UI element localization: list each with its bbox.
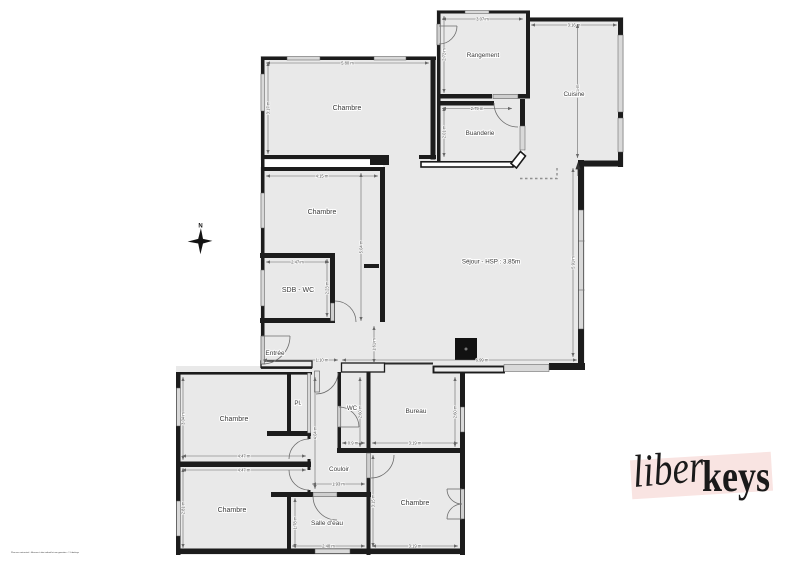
svg-text:Chambre: Chambre: [333, 105, 362, 112]
svg-text:3.19 m: 3.19 m: [409, 544, 422, 549]
svg-text:2.01 m: 2.01 m: [442, 125, 447, 138]
svg-text:2.60 m: 2.60 m: [453, 405, 458, 418]
svg-text:2.79 m: 2.79 m: [471, 106, 484, 111]
svg-text:Chambre: Chambre: [220, 416, 249, 423]
svg-text:Pl.: Pl.: [294, 400, 302, 407]
svg-text:5.80 m: 5.80 m: [341, 61, 354, 66]
svg-text:4.04 m: 4.04 m: [313, 426, 318, 439]
svg-text:4.47 m: 4.47 m: [238, 454, 251, 459]
svg-text:6.99 m: 6.99 m: [476, 358, 489, 363]
svg-text:3.16 m: 3.16 m: [568, 23, 581, 28]
svg-text:2.60 m: 2.60 m: [358, 405, 363, 418]
svg-text:WC: WC: [347, 405, 358, 412]
svg-text:Rangement: Rangement: [467, 52, 500, 59]
svg-text:Chambre: Chambre: [401, 500, 430, 507]
svg-text:1.61 m: 1.61 m: [372, 338, 377, 351]
svg-text:Plan non contractuel - Mesures: Plan non contractuel - Mesures à titre i…: [11, 551, 79, 554]
svg-text:3.17 m: 3.17 m: [266, 101, 271, 114]
svg-text:1.10 m: 1.10 m: [316, 358, 329, 363]
svg-text:2.48 m: 2.48 m: [322, 544, 335, 549]
svg-text:Cuisine: Cuisine: [564, 91, 585, 98]
svg-text:3.15 m: 3.15 m: [371, 494, 376, 507]
svg-text:2.72 m: 2.72 m: [442, 48, 447, 61]
svg-text:Bureau: Bureau: [406, 408, 427, 415]
svg-text:3.19 m: 3.19 m: [409, 441, 422, 446]
svg-text:Buanderie: Buanderie: [466, 130, 495, 137]
svg-text:Salle d'eau: Salle d'eau: [311, 520, 343, 527]
svg-text:2.47 m: 2.47 m: [291, 260, 304, 265]
svg-text:Séjour - HSP : 3.85m: Séjour - HSP : 3.85m: [462, 259, 520, 266]
svg-text:4.15 m: 4.15 m: [316, 174, 329, 179]
svg-text:3.04 m: 3.04 m: [181, 412, 186, 425]
svg-text:2.81 m: 2.81 m: [181, 501, 186, 514]
svg-text:Chambre: Chambre: [308, 209, 337, 216]
svg-text:1.93 m: 1.93 m: [332, 482, 345, 487]
svg-text:N: N: [198, 224, 202, 230]
svg-text:0.9 m: 0.9 m: [348, 441, 359, 446]
svg-text:SDB - WC: SDB - WC: [282, 287, 314, 294]
svg-text:4.47 m: 4.47 m: [238, 468, 251, 473]
svg-text:Entrée: Entrée: [265, 350, 285, 357]
svg-text:1.78 m: 1.78 m: [293, 516, 298, 529]
svg-text:keys: keys: [702, 452, 770, 501]
svg-text:5.04 m: 5.04 m: [359, 240, 364, 253]
svg-text:liber: liber: [630, 440, 706, 497]
svg-text:Chambre: Chambre: [218, 507, 247, 514]
svg-text:3.07 m: 3.07 m: [476, 17, 489, 22]
svg-text:Couloir: Couloir: [329, 466, 349, 473]
svg-text:2.23 m: 2.23 m: [325, 281, 330, 294]
svg-text:5.91 m: 5.91 m: [571, 256, 576, 269]
